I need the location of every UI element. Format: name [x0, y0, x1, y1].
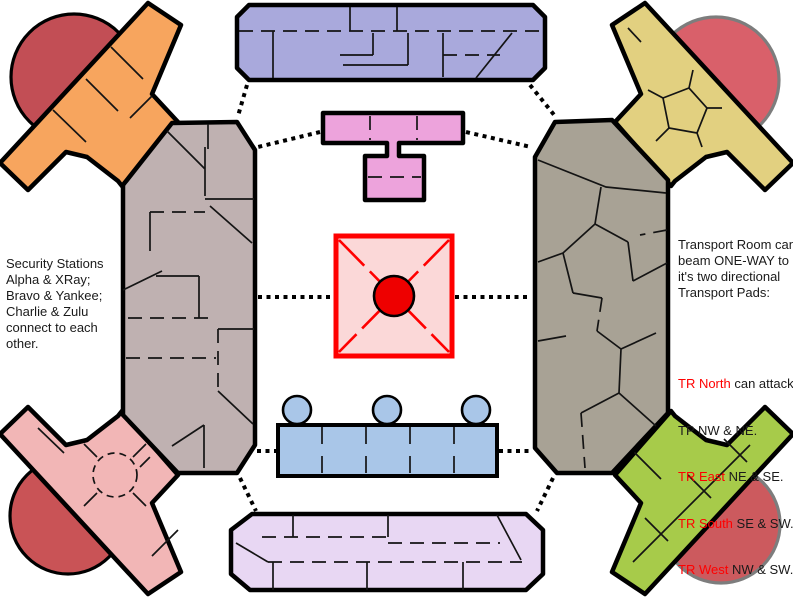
pad-dome-middle	[373, 396, 401, 424]
room-south-hull	[231, 514, 543, 590]
rule-line: TR West NW & SW.	[678, 562, 793, 578]
connector-nroom-wroom	[238, 85, 247, 116]
transport-note-rules: TR North can attack TP NW & NE. TR East …	[678, 345, 793, 597]
connector-sroom-eroom	[537, 478, 553, 511]
connector-npad-wroom	[258, 132, 320, 147]
connector-nroom-eroom	[530, 85, 555, 116]
rule-line: TR South SE & SW.	[678, 516, 793, 532]
security-stations-note: Security Stations Alpha & XRay; Bravo & …	[6, 256, 104, 352]
pad-dome-right	[462, 396, 490, 424]
room-west-hull	[123, 122, 255, 473]
room-west	[123, 122, 255, 473]
transport-note-intro: Transport Room can beam ONE-WAY to it's …	[678, 237, 793, 301]
station-map-svg	[0, 0, 793, 597]
transport-pad-north-hull	[323, 113, 463, 200]
rule-line: TP NW & NE.	[678, 423, 793, 439]
room-south	[231, 514, 543, 590]
pad-dome-left	[283, 396, 311, 424]
transport-room-note: Transport Room can beam ONE-WAY to it's …	[678, 205, 793, 597]
rule-line: TR North can attack	[678, 376, 793, 392]
room-north	[237, 5, 545, 80]
transport-pad-south	[278, 396, 497, 476]
room-north-hull	[237, 5, 545, 80]
transport-room	[336, 236, 452, 356]
connector-sroom-wroom	[240, 478, 256, 511]
transporter-core	[374, 276, 414, 316]
transport-pad-north	[323, 113, 463, 200]
rule-line: TR East NE & SE.	[678, 469, 793, 485]
transport-pad-south-hull	[278, 425, 497, 476]
station-map: Security Stations Alpha & XRay; Bravo & …	[0, 0, 793, 597]
connector-npad-eroom	[466, 132, 531, 147]
room-east-hull	[535, 120, 668, 473]
room-east	[535, 120, 668, 473]
